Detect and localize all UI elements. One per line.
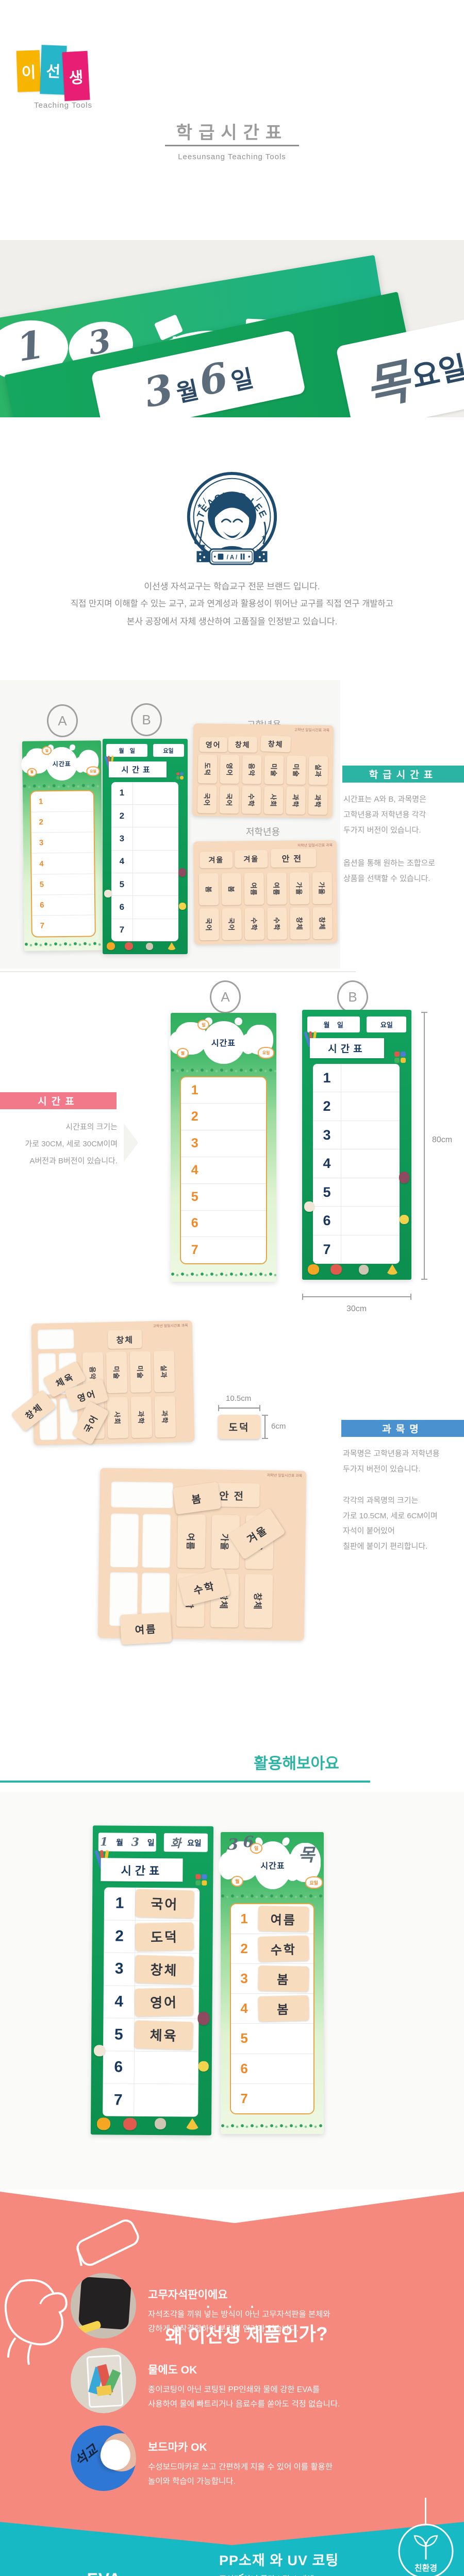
month-day-box: 월일 [307, 1016, 360, 1032]
book-icon [218, 554, 224, 560]
timetable-board-b: 월일 요일 시간표 1 2 3 4 5 6 7 [103, 739, 188, 954]
handwritten-front-weekday: 목 [358, 343, 415, 417]
section3-text: 자석이 붙어있어 [343, 1525, 395, 1536]
svg-text:★: ★ [261, 534, 267, 540]
blocks-sticker [196, 1874, 207, 1886]
sprout-border [23, 784, 102, 790]
logo-char: 생 [69, 64, 84, 88]
section-divider [0, 971, 356, 972]
usage-heading-rule [0, 1781, 370, 1783]
lower-grade-label: 저학년용 [246, 825, 280, 838]
triangle-ruler-sticker [185, 2119, 199, 2130]
feature-photo-marker: 석교 [71, 2426, 136, 2491]
cat-sticker [308, 1264, 319, 1275]
subject-tile: 체육 [135, 2020, 193, 2049]
version-a-label: A [210, 980, 241, 1013]
sprout-border [24, 941, 103, 948]
subject-tile: 봄 [258, 1995, 309, 2022]
feature-line: 수성보드마카로 쓰고 간편하게 지울 수 있어 이를 활용한 [148, 2461, 333, 2472]
rabbit-sticker [359, 1265, 369, 1275]
width-dimension-label: 30cm [346, 1304, 367, 1314]
svg-text:/ A /: / A / [227, 554, 238, 561]
blocks-sticker [394, 1052, 406, 1063]
sprout-border [171, 1068, 276, 1074]
monkey-sticker [399, 1172, 409, 1183]
usage-heading: 활용해보아요 [254, 1751, 339, 1773]
subject-sheet-upper: 고학년 일일시간표 과목 영어 창체 창체 도덕 영어 음악 미술 미술 실과 … [192, 723, 334, 818]
page-title: 학급시간표 [0, 118, 464, 144]
board-title: 시간표 [310, 1038, 384, 1058]
weekday-panel: 목 요일 [336, 317, 464, 417]
month-badge: 월 [27, 768, 37, 776]
section3-text: 두가지 버전이 있습니다. [343, 1463, 421, 1474]
hero-photo: 1 3 월 일 학 3 월 6 일 목 요일 [0, 240, 464, 417]
loose-tile: 여름 [120, 1612, 172, 1645]
cloud-right: 요일 [246, 1025, 273, 1054]
weekday-badge: 요일 [305, 1876, 323, 1889]
teacher-lee-emblem: TEACHER.LEE * / / ★ / / / A / [181, 471, 283, 567]
horn-sticker [304, 1201, 314, 1212]
weekday-box: 요일 [367, 1016, 406, 1032]
timetable-board-a-large: 월 일 시간표 요일 1 2 3 4 5 6 7 [171, 1013, 276, 1282]
feature-title: 물에도 OK [148, 2362, 197, 2377]
timetable-board-a: 월 일 시간표 요일 1 2 3 4 5 6 7 [22, 740, 103, 951]
section2-text: 가로 30CM, 세로 30CM이며 [25, 1138, 118, 1149]
version-a-label: A [47, 704, 78, 737]
section1-text: 고학년용과 저학년용 각각 [343, 809, 426, 820]
triangle-ruler-sticker [386, 1264, 399, 1275]
section1-text: 상품을 선택할 수 있습니다. [343, 873, 430, 884]
usage-board-a: 3 6 월 일 시간표 목 요일 1여름 2수학 3봄 4봄 5 6 7 [221, 1832, 324, 2134]
feature-line: 자석조각을 끼워 넣는 방식이 아닌 고무자석판을 본체와 [148, 2308, 330, 2319]
title-underline [165, 145, 299, 146]
timetable-board-b-large: 월일 요일 시간표 1 2 3 4 5 6 7 [302, 1010, 411, 1280]
feature-line: 종이코팅이 아닌 코팅된 PP인쇄와 물에 강한 EVA를 [148, 2383, 320, 2395]
logo-square-pink: 생 [62, 51, 90, 101]
scissors-sticker [400, 1215, 409, 1224]
feature-line: 사용하여 물에 빠트리거나 음료수를 쏟아도 걱정 없습니다. [148, 2398, 340, 2409]
subject-tile: 수학 [258, 1936, 309, 1962]
eco-stamp: 친환경 [397, 2522, 455, 2576]
sprout-border [221, 1894, 324, 1900]
section2-badge: 시간표 [0, 1092, 117, 1109]
subject-tile: 여름 [258, 1906, 309, 1932]
section3-text: 과목명은 고학년용과 저학년용 [343, 1448, 440, 1459]
callout-connectors [124, 2550, 278, 2576]
height-dimension-label: 80cm [432, 1136, 452, 1145]
section2-text: 시간표의 크기는 [65, 1121, 118, 1132]
version-b-label: B [337, 980, 368, 1013]
monkey-sticker [198, 2012, 210, 2025]
cat-sticker [107, 942, 115, 950]
rabbit-sticker [155, 2118, 166, 2129]
horn-sticker [104, 890, 112, 897]
intro-line: 본사 공장에서 자체 생산하여 고품질을 인정받고 있습니다. [0, 614, 464, 627]
subject-tile: 도덕 [136, 1922, 194, 1951]
subject-sheet-lower: 저학년 일일시간표 과목 겨울 겨울 안전 봄 봄 여름 여름 가을 가을 국어… [193, 840, 338, 945]
eva-title: EVA [87, 2570, 121, 2576]
logo-subtext: Teaching Tools [34, 101, 92, 110]
weekday-badge: 요일 [86, 767, 100, 776]
month-day-box: 1월 3일 [98, 1833, 156, 1852]
scissors-sticker [179, 903, 186, 910]
monkey-sticker [178, 868, 186, 877]
feature-photo-water [71, 2348, 136, 2413]
horn-sticker [94, 2045, 105, 2056]
sample-tile: 도덕 [218, 1415, 260, 1439]
rabbit-sticker [146, 943, 153, 950]
section3-badge: 과목명 [341, 1420, 464, 1437]
section1-badge: 학급시간표 [342, 766, 464, 783]
board-title: 시간표 [101, 1858, 183, 1882]
intro-line: 직접 만지며 이해할 수 있는 교구, 교과 연계성과 활용성이 뛰어난 교구를… [0, 597, 464, 609]
alarm-clock: 시간표 [203, 1021, 245, 1064]
subject-tile: 봄 [258, 1965, 309, 1992]
section3-text: 가로 10.5CM, 세로 6CM이며 [343, 1510, 438, 1521]
subject-tile: 영어 [135, 1988, 194, 2016]
feature-photo-magnet [71, 2273, 136, 2338]
weekday-badge: 요일 [258, 1047, 274, 1059]
weekday-box: 요일 [153, 744, 184, 757]
blocks-sticker [176, 772, 184, 779]
logo-square-yellow: 이 [16, 50, 41, 92]
svg-text:친환경: 친환경 [415, 2564, 437, 2573]
logo-char: 선 [46, 58, 61, 81]
sprout-border [171, 1272, 276, 1278]
section1-text: 옵션을 통해 원하는 조합으로 [343, 857, 435, 868]
section1-text: 시간표는 A와 B, 과목명은 [343, 793, 426, 804]
month-badge: 월 [177, 1048, 189, 1058]
sprout-border [221, 2124, 324, 2129]
dog-sticker [123, 2118, 137, 2130]
section1-text: 두가지 버전이 있습니다. [343, 824, 421, 835]
feature-title: 보드마카 OK [148, 2439, 207, 2454]
month-day-box: 월일 [106, 744, 147, 757]
section2-text: A버전과 B버전이 있습니다. [29, 1155, 118, 1166]
tile-height-label: 6cm [271, 1422, 286, 1431]
usage-board-b: 1월 3일 화요일 시간표 1국어 2도덕 3창체 4영어 5체육 6 7 [91, 1825, 213, 2136]
version-b-label: B [131, 703, 162, 736]
cloud-right: 요일 [78, 750, 99, 773]
dog-sticker [125, 942, 133, 950]
month-badge: 월 [231, 1876, 243, 1887]
product-detail-page: 이 선 생 Teaching Tools 학급시간표 Leesunsang Te… [0, 0, 464, 2576]
section3-text: 칠판에 붙이기 편리합니다. [343, 1540, 427, 1551]
page-subtitle: Leesunsang Teaching Tools [0, 152, 464, 161]
cat-sticker [97, 2117, 110, 2130]
subject-tile: 국어 [136, 1889, 194, 1919]
dog-sticker [330, 1264, 342, 1275]
height-dimension-line [424, 1012, 425, 1280]
handwritten-month: 1 [14, 323, 47, 370]
abacus-icon [241, 554, 242, 560]
pointer-chevron [124, 1123, 138, 1162]
triangle-ruler-sticker [167, 942, 176, 950]
tile-width-label: 10.5cm [226, 1394, 251, 1403]
intro-line: 이선생 자석교구는 학습교구 전문 브랜드 입니다. [0, 579, 464, 592]
cloud-left: 월 일 [175, 1022, 207, 1055]
handwritten-front-month: 3 [140, 365, 177, 417]
svg-text:*: * [197, 502, 202, 513]
cloud-left: 월 일 [25, 749, 49, 774]
feature-line: 놀이와 학습이 가능합니다. [148, 2475, 236, 2486]
section3-text: 각각의 과목명의 크기는 [343, 1495, 418, 1505]
board-title: 시간표 [109, 761, 167, 777]
scissors-sticker [198, 2061, 209, 2072]
eco-stamp-stem [425, 2498, 426, 2524]
cloud-right: 목 요일 [290, 1843, 321, 1882]
feature-line: 강하게 압착결합하여 분리될 염려가 없습니다. [148, 2323, 299, 2334]
tile-width-line [218, 1408, 260, 1409]
tile-height-line [264, 1415, 266, 1439]
width-dimension-line [302, 1296, 411, 1297]
weekday-box: 화요일 [164, 1834, 208, 1853]
logo-char: 이 [21, 60, 36, 83]
handwritten-front-day: 6 [195, 353, 232, 405]
feature-title: 고무자석판이에요 [148, 2286, 228, 2302]
subject-tile: 창체 [135, 1955, 194, 1984]
day-badge: 일 [250, 1843, 262, 1854]
